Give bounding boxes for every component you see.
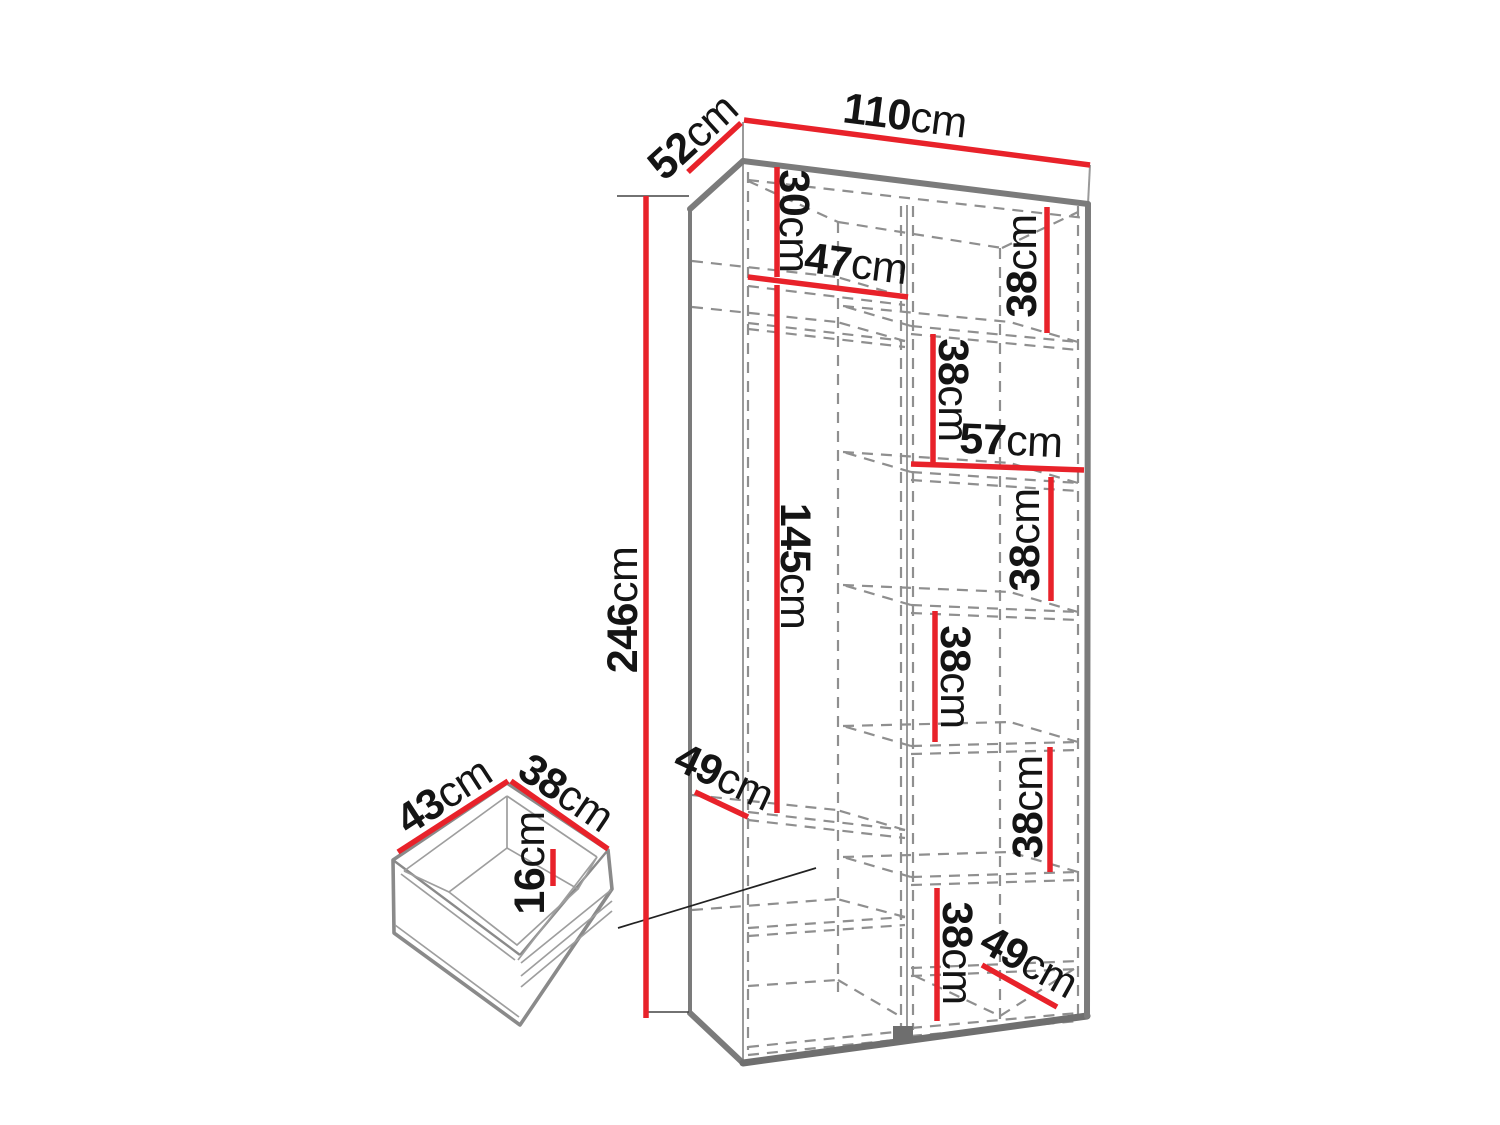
- dim-label-hanging-space: 145cm: [771, 503, 819, 630]
- dim-label-right-shelf-3: 38cm: [1001, 488, 1049, 591]
- dim-label-right-shelf-4: 38cm: [931, 625, 979, 728]
- dim-label-drawer-height: 16cm: [506, 811, 554, 914]
- wardrobe-dimension-diagram: 110cm 52cm 246cm 30cm 47cm 38cm 38cm 57c…: [0, 0, 1500, 1125]
- dim-label-height: 246cm: [599, 547, 647, 674]
- dim-label-right-shelf-5: 38cm: [1004, 755, 1052, 858]
- divider-foot: [893, 1026, 913, 1042]
- diagram-canvas: 110cm 52cm 246cm 30cm 47cm 38cm 38cm 57c…: [0, 0, 1500, 1125]
- dim-label-right-shelf-6: 38cm: [933, 901, 981, 1004]
- dim-label-right-section-width: 57cm: [958, 415, 1063, 467]
- dim-label-width: 110cm: [840, 84, 969, 147]
- dim-label-right-shelf-1: 38cm: [998, 214, 1046, 317]
